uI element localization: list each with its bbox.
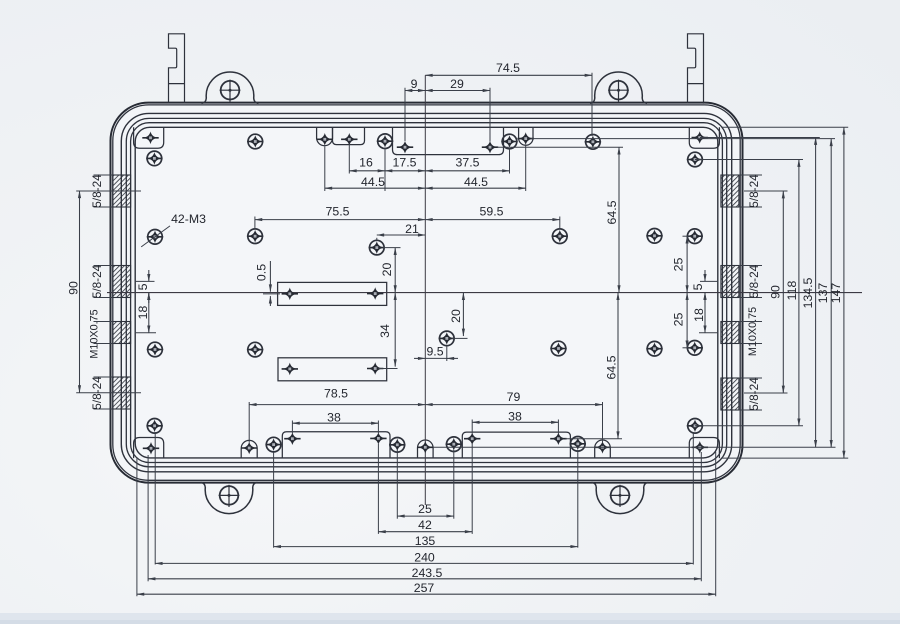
svg-text:79: 79 [507,390,521,404]
svg-text:5/8-24: 5/8-24 [747,174,761,208]
svg-text:147: 147 [829,283,843,304]
svg-text:64.5: 64.5 [605,200,619,224]
svg-text:118: 118 [785,281,799,301]
svg-text:240: 240 [414,550,435,564]
svg-text:18: 18 [136,306,150,320]
svg-text:5/8-24: 5/8-24 [747,377,761,411]
svg-text:90: 90 [67,281,81,295]
svg-text:34: 34 [378,324,392,338]
svg-text:16: 16 [359,155,373,169]
svg-text:74.5: 74.5 [496,61,520,75]
svg-text:9.5: 9.5 [426,345,443,359]
svg-text:257: 257 [414,581,435,595]
svg-text:42-M3: 42-M3 [171,212,206,226]
svg-text:37.5: 37.5 [456,155,480,169]
svg-text:25: 25 [418,502,432,516]
svg-text:59.5: 59.5 [480,205,504,219]
svg-text:17.5: 17.5 [393,155,417,169]
svg-text:5/8-24: 5/8-24 [90,376,104,410]
svg-text:75.5: 75.5 [326,205,350,219]
svg-text:64.5: 64.5 [605,355,619,379]
svg-text:38: 38 [508,410,522,424]
svg-text:135: 135 [415,534,436,548]
svg-text:134.5: 134.5 [801,277,815,308]
svg-text:5/8-24: 5/8-24 [747,264,761,298]
svg-text:21: 21 [405,222,419,236]
svg-text:0.5: 0.5 [255,264,269,281]
svg-text:M10X0.75: M10X0.75 [89,309,101,358]
svg-text:42: 42 [418,518,432,532]
svg-text:243.5: 243.5 [412,566,443,580]
svg-text:137: 137 [816,283,830,304]
svg-text:25: 25 [672,313,686,327]
svg-text:9: 9 [411,77,418,91]
svg-text:18: 18 [692,308,706,322]
svg-text:44.5: 44.5 [361,175,385,189]
svg-text:M10X0.75: M10X0.75 [747,307,759,356]
svg-text:29: 29 [450,77,464,91]
svg-text:90: 90 [769,285,783,299]
svg-text:5/8-24: 5/8-24 [90,264,104,298]
svg-text:25: 25 [672,258,686,272]
svg-text:44.5: 44.5 [464,175,488,189]
svg-text:5: 5 [136,283,150,290]
svg-text:5: 5 [691,283,705,290]
svg-text:78.5: 78.5 [324,387,348,401]
svg-text:38: 38 [327,410,341,424]
svg-text:20: 20 [380,263,394,277]
svg-text:20: 20 [449,309,463,323]
svg-text:5/8-24: 5/8-24 [90,174,104,208]
